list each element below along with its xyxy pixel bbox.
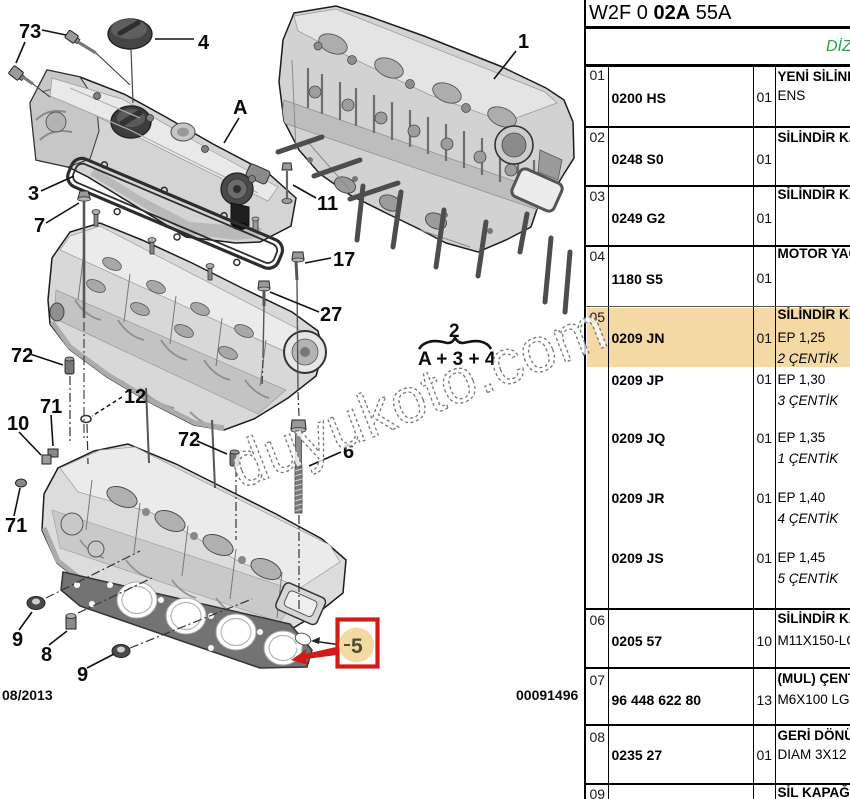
svg-text:duyukoto.com: duyukoto.com [220, 292, 616, 502]
